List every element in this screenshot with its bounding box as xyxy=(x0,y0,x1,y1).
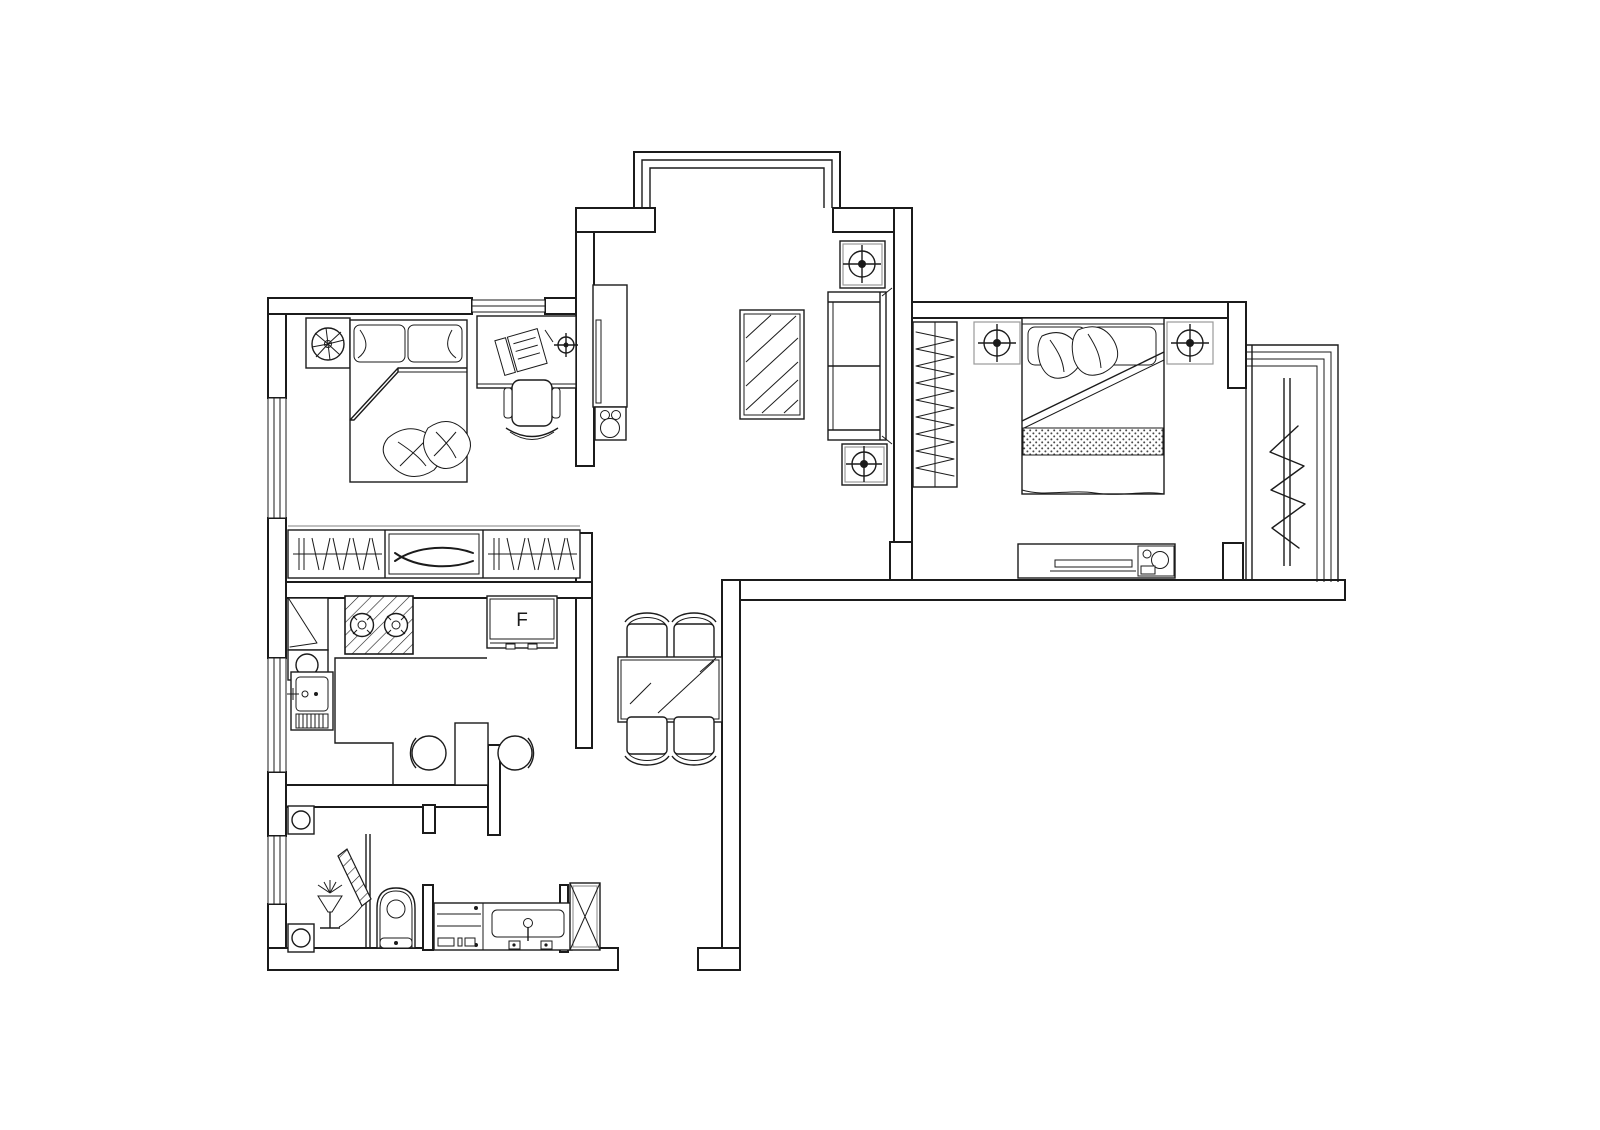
side-table-top xyxy=(840,241,885,288)
wardrobe xyxy=(913,322,957,487)
wall-bedroom2-balcony-jog xyxy=(1228,302,1246,388)
window-kitchen-west xyxy=(268,658,286,772)
wall-dining-foot xyxy=(698,948,740,970)
window-bathroom-west xyxy=(268,836,286,904)
tv-icon xyxy=(596,320,601,403)
tv-icon xyxy=(1055,560,1132,567)
closet-center-motif xyxy=(389,534,479,574)
ceiling-light-icon xyxy=(1171,324,1209,362)
wall-bath-door-stub-bottom xyxy=(423,885,433,950)
wall-dining-right xyxy=(722,580,740,970)
gas-stove xyxy=(345,596,413,654)
window-bedroom1-west xyxy=(268,398,286,518)
coffee-table xyxy=(740,310,804,419)
wall-living-left xyxy=(576,208,594,466)
nightstand-with-light xyxy=(1167,322,1213,364)
wall-bedroom2-top xyxy=(912,302,1246,318)
wall-south-long xyxy=(722,580,1345,600)
wall-left-3 xyxy=(268,772,286,836)
office-chair xyxy=(504,380,560,440)
fridge-label: F xyxy=(516,610,528,631)
wall-left-2 xyxy=(268,518,286,658)
kitchen-sink xyxy=(287,672,333,730)
dining-table xyxy=(618,657,722,722)
fridge-handle xyxy=(506,644,515,649)
desk xyxy=(477,316,578,388)
balcony xyxy=(1246,345,1338,582)
wall-bath-door-stub-top xyxy=(423,805,435,833)
fridge: F xyxy=(487,596,557,649)
toilet xyxy=(377,888,415,948)
chair-back xyxy=(506,428,558,437)
dining-chair xyxy=(672,717,716,765)
side-table-bottom xyxy=(842,444,887,485)
floor-drain xyxy=(288,806,314,834)
media-box xyxy=(1138,546,1174,576)
wall-bedroom2-balcony-stub xyxy=(1223,543,1243,580)
drying-rack-icon xyxy=(1270,378,1305,566)
burner-icon xyxy=(385,614,408,637)
apartment-floor-plan: F xyxy=(0,0,1600,1130)
blanket-band xyxy=(1023,428,1163,455)
utility-shaft xyxy=(570,883,600,950)
entry-vestibule xyxy=(634,152,840,232)
ceiling-light-icon xyxy=(978,324,1016,362)
sofa xyxy=(828,288,892,444)
entry-frame-mid xyxy=(642,160,832,208)
wall-kitchen-bath xyxy=(286,785,488,807)
wall-stub-living-bottom xyxy=(890,542,912,582)
closet xyxy=(288,526,580,578)
wall-bedroom1-top xyxy=(268,298,472,314)
armrest xyxy=(552,388,560,418)
vanity xyxy=(434,903,572,950)
window-bedroom1-north xyxy=(472,300,545,312)
kitchen: F xyxy=(287,596,557,785)
tv-console xyxy=(1018,544,1175,578)
living-room xyxy=(593,241,892,485)
nightstand-with-light xyxy=(974,322,1020,364)
bedroom-left xyxy=(288,316,580,578)
shower-head-icon xyxy=(318,880,342,928)
tv-cabinet-living xyxy=(593,285,627,407)
armrest xyxy=(504,388,512,418)
wall-partition-living-bedroom2 xyxy=(894,208,912,542)
vanity-tray xyxy=(438,938,454,946)
bathroom xyxy=(288,806,600,952)
bedroom-right xyxy=(913,318,1213,578)
fridge-handle xyxy=(528,644,537,649)
drainboard xyxy=(296,714,328,728)
dining-chair xyxy=(625,717,669,765)
burner-icon xyxy=(351,614,374,637)
floor-plan-page: F xyxy=(0,0,1600,1130)
dining-chair xyxy=(625,613,669,661)
entry-frame-inner xyxy=(650,168,824,208)
breakfast-counter xyxy=(455,723,488,785)
dining-chair xyxy=(672,613,716,661)
pillow xyxy=(354,325,405,362)
stool-left xyxy=(410,736,446,770)
corner-cabinet xyxy=(288,598,328,650)
wall-living-top-left xyxy=(576,208,655,232)
double-bed xyxy=(1022,318,1164,494)
floor-drain xyxy=(288,924,314,952)
balcony-window-frame xyxy=(1246,345,1338,582)
nightstand-left xyxy=(306,318,350,368)
dining-area xyxy=(618,613,722,765)
media-appliance xyxy=(595,407,626,440)
stool-right xyxy=(498,736,534,770)
single-bed xyxy=(350,320,471,482)
